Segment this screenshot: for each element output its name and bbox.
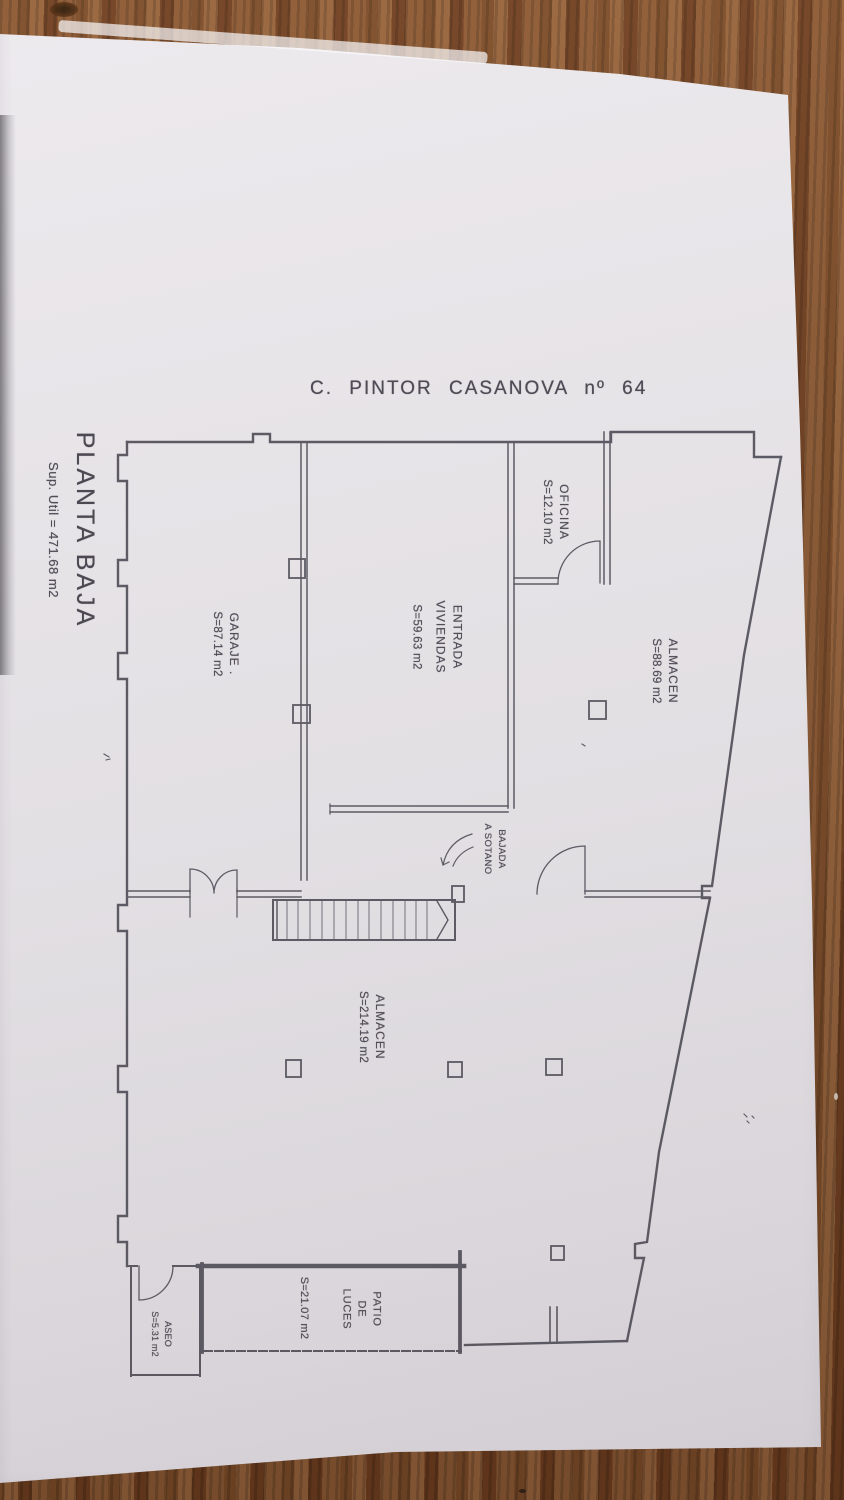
- room-name: ENTRADA: [448, 600, 465, 673]
- label-bajada-a-sotano: BAJADA A SOTANO: [480, 823, 508, 874]
- room-area: S=88.69 m2: [647, 638, 664, 703]
- room-label-patio-de-luces: PATIO DE LUCES: [339, 1289, 384, 1330]
- total-area-label: Sup. Util = 471.68 m2: [43, 432, 62, 629]
- room-name: DE: [354, 1289, 369, 1330]
- room-area: S=12.10 m2: [538, 479, 555, 544]
- room-name: VIVIENDAS: [431, 600, 448, 673]
- floor-plan-drawing: [0, 0, 844, 1500]
- room-name: PATIO: [368, 1289, 383, 1330]
- room-name: ALMACEN: [371, 991, 388, 1063]
- room-label-aseo: ASEO S=5.31 m2: [148, 1311, 174, 1357]
- room-name: ALMACEN: [664, 638, 681, 703]
- room-area: S=5.31 m2: [148, 1311, 161, 1357]
- room-label-almacen-superior: ALMACEN S=88.69 m2: [647, 638, 681, 703]
- room-label-almacen-inferior: ALMACEN S=214.19 m2: [354, 991, 388, 1063]
- patio-area-label: S=21.07 m2: [295, 1277, 311, 1340]
- floor-title-block: PLANTA BAJA Sup. Util = 471.68 m2: [43, 432, 103, 629]
- stair-label: BAJADA: [494, 823, 508, 874]
- room-name: LUCES: [339, 1289, 354, 1330]
- room-label-garaje: GARAJE . S=87.14 m2: [208, 611, 242, 676]
- room-name: OFICINA: [555, 479, 572, 544]
- room-label-entrada-viviendas: ENTRADA VIVIENDAS S=59.63 m2: [408, 600, 465, 673]
- room-area: S=214.19 m2: [354, 991, 371, 1063]
- floor-title: PLANTA BAJA: [67, 432, 103, 629]
- room-name: ASEO: [161, 1311, 174, 1357]
- room-area: S=87.14 m2: [208, 611, 225, 676]
- room-area: S=59.63 m2: [408, 600, 425, 673]
- photo-of-floor-plan: { "document": { "street_title": "C. PINT…: [0, 0, 844, 1500]
- room-name: GARAJE .: [225, 611, 242, 676]
- stair-label: A SOTANO: [480, 823, 494, 874]
- room-label-oficina: OFICINA S=12.10 m2: [538, 479, 572, 544]
- street-title: C. PINTOR CASANOVA nº 64: [310, 378, 647, 400]
